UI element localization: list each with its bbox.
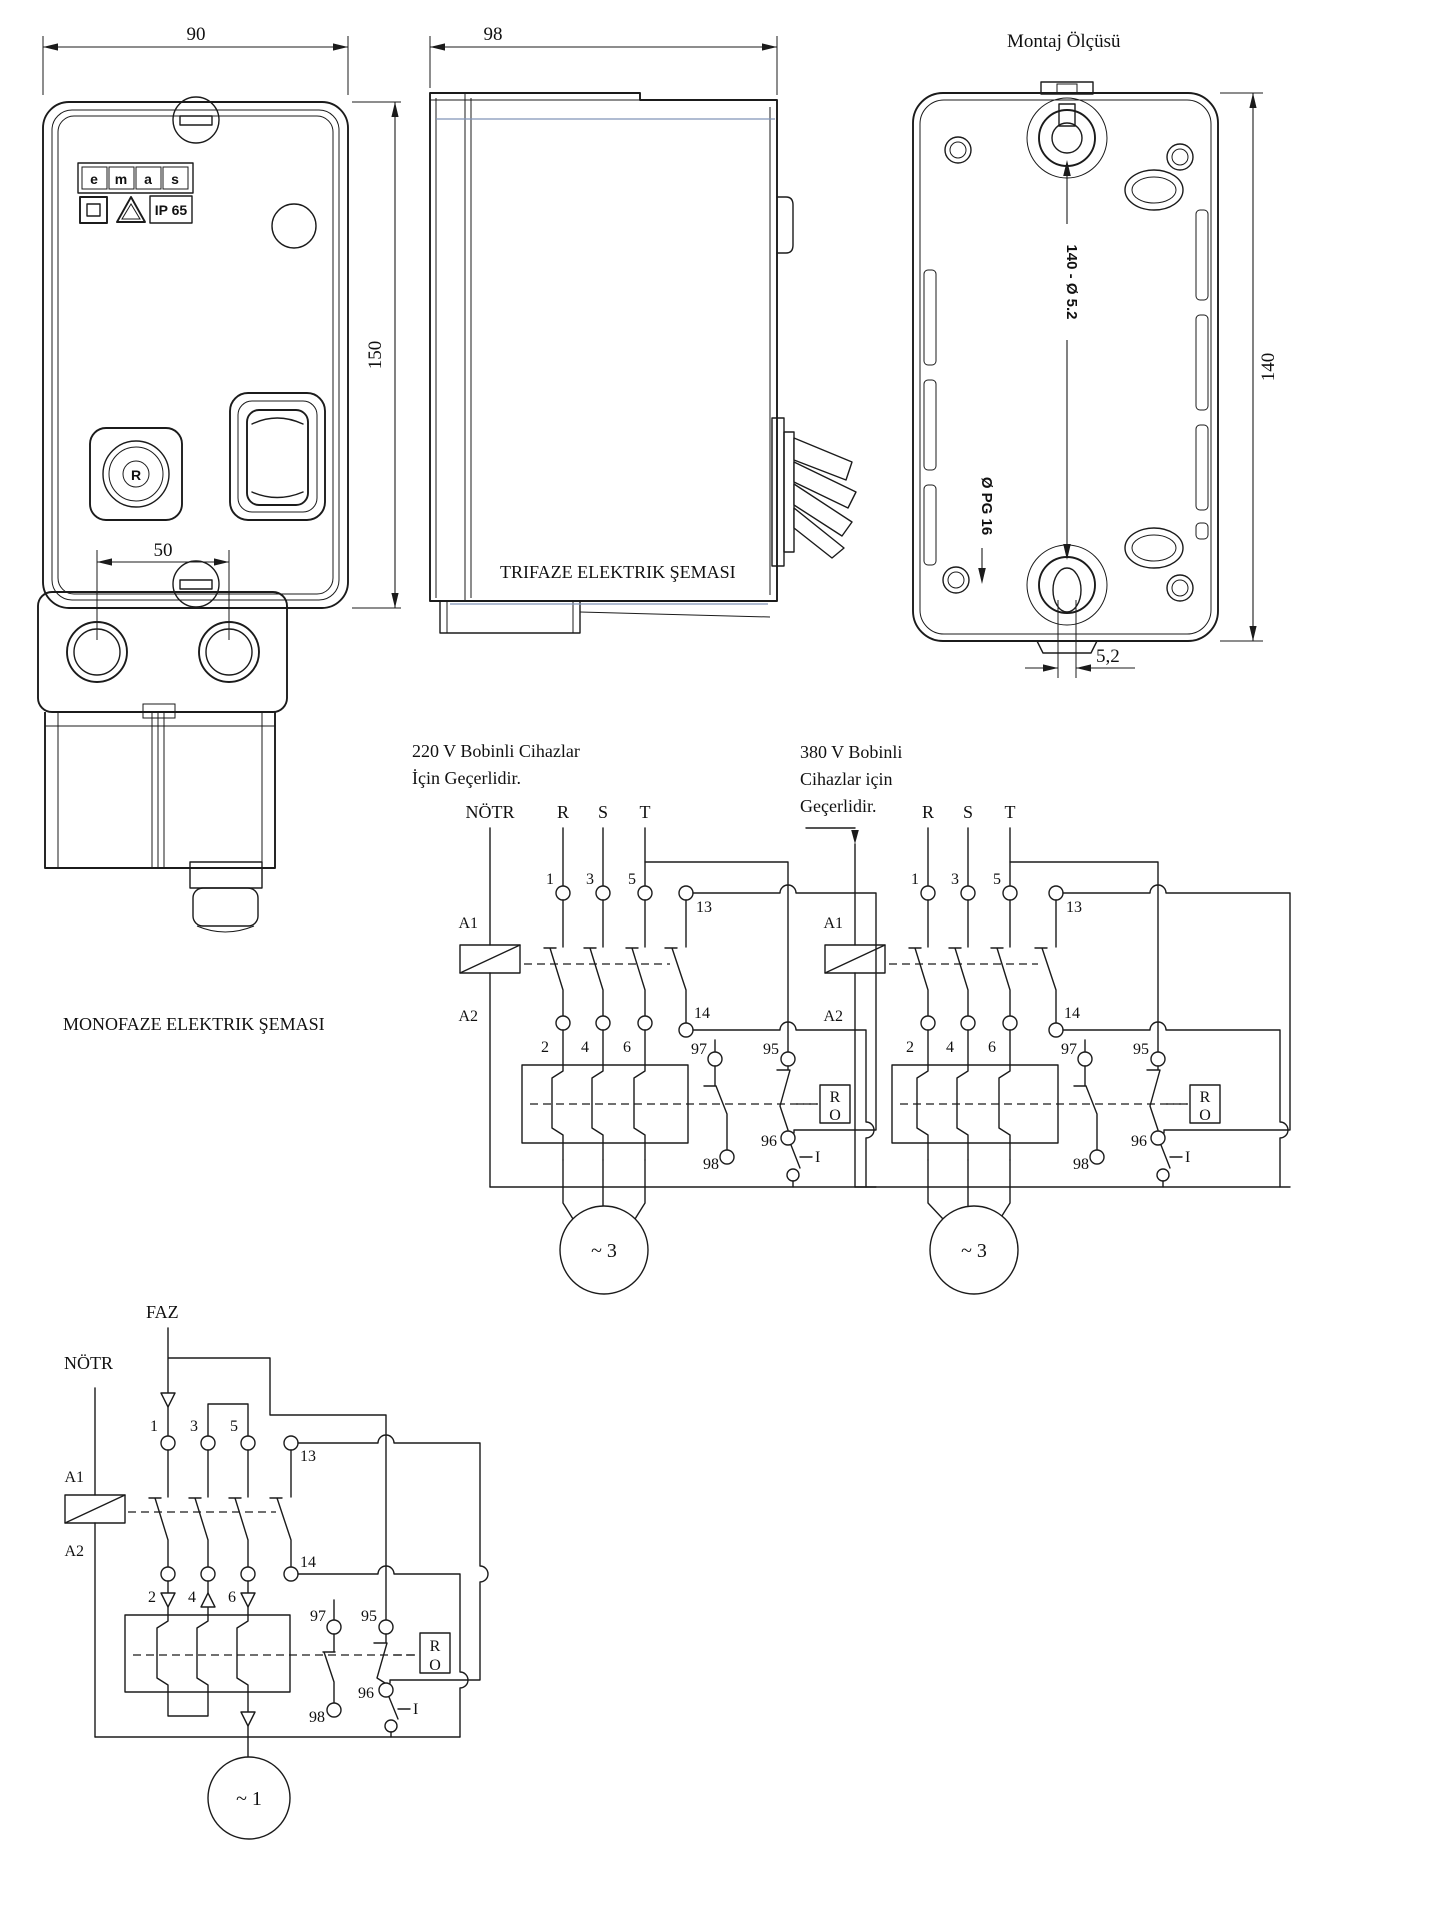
c380-aux14: 14 (1064, 1005, 1080, 1022)
front-view: e m a s IP 65 R (43, 97, 348, 608)
square-symbol-icon (80, 197, 107, 223)
logo-letter-s: s (171, 171, 179, 187)
mono-motor: ~ 1 (208, 1692, 290, 1839)
c380-motor-label: ~ 3 (961, 1240, 987, 1262)
mono-poles: 1 3 5 2 4 6 (148, 1404, 255, 1615)
dim-back-height: 140 (1220, 93, 1279, 641)
c220-aux13: 13 (696, 899, 712, 916)
logo-letter-e: e (90, 171, 98, 187)
c380-a2: A2 (823, 1008, 843, 1025)
technical-drawing: e m a s IP 65 R (0, 0, 1434, 1920)
cable-gland-side (772, 418, 856, 566)
dim-cable-gland: Ø PG 16 (978, 477, 995, 584)
mono-aux14: 14 (300, 1554, 316, 1571)
c380-phase-s: S (963, 802, 973, 822)
mono-t1: 1 (150, 1418, 158, 1435)
c220-95: 95 (763, 1041, 779, 1058)
c380-98: 98 (1073, 1156, 1089, 1173)
mono-t3: 3 (190, 1418, 198, 1435)
mono-thermal-relay (125, 1615, 418, 1716)
c380-header-1: 380 V Bobinli (800, 742, 902, 762)
mono-reset-r: R (430, 1638, 441, 1655)
mono-t5: 5 (230, 1418, 238, 1435)
reset-button-letter: R (131, 467, 141, 483)
mono-start: I (413, 1701, 418, 1718)
logo-letter-m: m (115, 171, 127, 187)
ip-rating-badge: IP 65 (150, 196, 192, 223)
c220-aux14: 14 (694, 1005, 710, 1022)
c220-aux-contact: 13 14 (665, 886, 712, 1037)
dim-98-label: 98 (484, 24, 503, 45)
ip-rating-label: IP 65 (155, 202, 188, 218)
c220-phase-r: R (557, 802, 569, 822)
warning-triangle-icon (117, 197, 145, 222)
dim-hole-centers: 50 (97, 540, 229, 640)
trifaze-title: TRIFAZE ELEKTRIK ŞEMASI (500, 562, 736, 582)
circuit-trifaze-380: 380 V Bobinli Cihazlar için Geçerlidir. … (800, 742, 1290, 1294)
dim-slot-width: 5,2 (1025, 600, 1135, 678)
mono-reset-o: O (429, 1657, 441, 1674)
c220-96: 96 (761, 1133, 777, 1150)
c380-96: 96 (1131, 1133, 1147, 1150)
c380-header-3: Geçerlidir. (800, 796, 876, 816)
dim-side-depth: 98 (430, 24, 777, 95)
c380-t6: 6 (988, 1039, 996, 1056)
c220-t6: 6 (623, 1039, 631, 1056)
indicator-hole (272, 204, 316, 248)
mono-faz-arrow (161, 1393, 175, 1407)
c220-a2: A2 (458, 1008, 478, 1025)
mono-trip-nc: 95 96 I (358, 1608, 418, 1737)
logo-letter-a: a (144, 171, 152, 187)
c220-trip-nc: 95 96 I (761, 1041, 820, 1187)
c220-coil: A1 A2 (458, 915, 520, 1025)
c220-header-1: 220 V Bobinli Cihazlar (412, 741, 580, 761)
mono-aux-contact: 13 14 (270, 1436, 316, 1581)
mono-t6: 6 (228, 1589, 236, 1606)
c380-95: 95 (1133, 1041, 1149, 1058)
c380-reset-o: O (1199, 1107, 1211, 1124)
mono-notr-label: NÖTR (64, 1353, 113, 1373)
c220-neutral-label: NÖTR (466, 802, 515, 822)
c380-trip-no: 97 98 (1061, 1040, 1104, 1173)
dim-140-label: 140 (1258, 353, 1279, 382)
c220-header-2: İçin Geçerlidir. (412, 768, 521, 788)
top-screw (173, 97, 219, 143)
mono-95: 95 (361, 1608, 377, 1625)
c380-aux13: 13 (1066, 899, 1082, 916)
circuit-trifaze-220: 220 V Bobinli Cihazlar İçin Geçerlidir. … (412, 741, 876, 1294)
pg16-gland (190, 862, 262, 932)
c380-t1: 1 (911, 871, 919, 888)
emas-logo: e m a s (78, 163, 193, 193)
c220-t3: 3 (586, 871, 594, 888)
mono-a1: A1 (64, 1469, 84, 1486)
dim-front-width: 90 (43, 24, 348, 95)
circuit-monofaze: FAZ NÖTR A1 A2 1 3 5 2 4 6 (64, 1302, 488, 1839)
c380-motor: ~ 3 (928, 1160, 1018, 1294)
c220-trip-no: 97 98 (691, 1040, 734, 1173)
side-button-profile (777, 197, 793, 253)
c220-phase-s: S (598, 802, 608, 822)
c380-97: 97 (1061, 1041, 1077, 1058)
dim-mount-holes: 140 - Ø 5.2 (1063, 160, 1080, 560)
dim-mount-holes-label: 140 - Ø 5.2 (1063, 244, 1080, 319)
dim-90-label: 90 (187, 24, 206, 45)
dim-5-2-label: 5,2 (1096, 646, 1120, 667)
mono-trip-no: 97 98 (309, 1600, 341, 1726)
mono-motor-label: ~ 1 (236, 1788, 262, 1810)
c220-t4: 4 (581, 1039, 589, 1056)
mono-a2: A2 (64, 1543, 84, 1560)
c380-t3: 3 (951, 871, 959, 888)
mono-reset-box: R O (394, 1633, 450, 1674)
c380-aux-contact: 13 14 (1035, 886, 1082, 1037)
mono-t2: 2 (148, 1589, 156, 1606)
c220-motor-label: ~ 3 (591, 1240, 617, 1262)
c380-trip-nc: 95 96 I (1131, 1041, 1190, 1187)
c220-reset-o: O (829, 1107, 841, 1124)
c220-phase-t: T (640, 802, 651, 822)
c380-t2: 2 (906, 1039, 914, 1056)
bottom-keyhole (1027, 545, 1107, 653)
c380-reset-r: R (1200, 1089, 1211, 1106)
c220-t2: 2 (541, 1039, 549, 1056)
c220-98: 98 (703, 1156, 719, 1173)
c380-feed-arrow (806, 828, 859, 844)
c220-97: 97 (691, 1041, 707, 1058)
reset-button: R (90, 428, 182, 520)
dim-150-label: 150 (365, 341, 386, 370)
side-view (430, 93, 856, 633)
mono-t4: 4 (188, 1589, 196, 1606)
c220-reset-r: R (830, 1089, 841, 1106)
c220-motor: ~ 3 (560, 1160, 648, 1294)
c380-header-2: Cihazlar için (800, 769, 892, 789)
catalog-drawing-page: e m a s IP 65 R (0, 0, 1434, 1920)
rocker-switch (230, 393, 325, 520)
dim-50-label: 50 (154, 540, 173, 561)
mono-aux13: 13 (300, 1448, 316, 1465)
c380-t5: 5 (993, 871, 1001, 888)
dim-front-height: 150 (352, 102, 401, 608)
mono-faz-label: FAZ (146, 1302, 179, 1322)
c380-a1: A1 (823, 915, 843, 932)
c380-phase-r: R (922, 802, 934, 822)
monofaze-title: MONOFAZE ELEKTRIK ŞEMASI (63, 1014, 325, 1034)
c380-start: I (1185, 1149, 1190, 1166)
c380-phase-t: T (1005, 802, 1016, 822)
c380-t4: 4 (946, 1039, 954, 1056)
mounting-title: Montaj Ölçüsü (1007, 31, 1121, 52)
c220-start: I (815, 1149, 820, 1166)
bottom-view (38, 592, 287, 932)
mono-98: 98 (309, 1709, 325, 1726)
mono-97: 97 (310, 1608, 326, 1625)
dim-gland-label: Ø PG 16 (978, 477, 995, 535)
c220-a1: A1 (458, 915, 478, 932)
mono-96: 96 (358, 1685, 374, 1702)
oval-knockouts (1125, 170, 1183, 568)
c220-t1: 1 (546, 871, 554, 888)
c220-t5: 5 (628, 871, 636, 888)
